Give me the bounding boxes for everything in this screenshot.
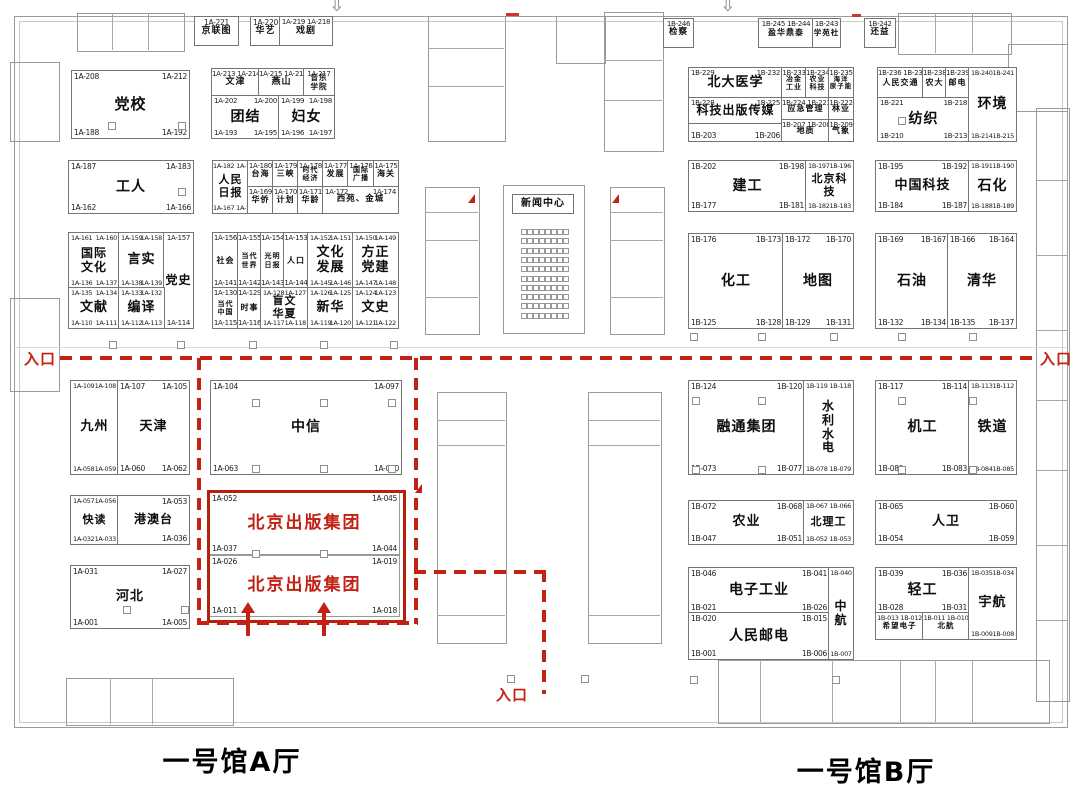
booth-number: 1B-067 bbox=[806, 502, 828, 510]
booth-label: 发展 bbox=[327, 169, 345, 178]
wall-line bbox=[604, 60, 662, 61]
booth-a-fangzhengdangjian: 1A-1501A-1491A-1471A-148方正 党建 bbox=[352, 232, 399, 289]
booth-number: 1A-180 bbox=[248, 162, 273, 170]
booth-label: 当代 世界 bbox=[242, 252, 258, 268]
booth-number: 1A-119 bbox=[310, 319, 331, 327]
booth-number: 1B-125 bbox=[691, 318, 716, 327]
booth-number: 1B-195 bbox=[878, 162, 903, 171]
booth-number: 1A-056 bbox=[95, 497, 116, 505]
booth-number: 1B-233 bbox=[782, 69, 806, 77]
booth-label: 中信 bbox=[291, 419, 321, 435]
booth-number: 1B-046 bbox=[691, 569, 716, 578]
route-dashed-line bbox=[542, 570, 546, 694]
booth-number: 1B-225 bbox=[757, 99, 780, 107]
booth-b-haiyang: 1B-235海洋 原子能 bbox=[828, 67, 854, 99]
wall-line bbox=[900, 660, 901, 722]
pillar bbox=[969, 333, 977, 341]
pillar bbox=[898, 333, 906, 341]
booth-label: 盲文 华夏 bbox=[273, 295, 297, 320]
booth-number: 1B-001 bbox=[691, 649, 716, 658]
booth-b-245-244: 1B-245 1B-244盈华鼎泰 bbox=[758, 18, 814, 48]
booth-a-220: 1A-220华艺 bbox=[250, 16, 281, 46]
booth-a-guojiguangbo: 1A-176国际 广播 bbox=[347, 160, 375, 188]
booth-number: 1A-122 bbox=[375, 319, 396, 327]
booth-label: 党史 bbox=[165, 274, 191, 288]
booth-number: 1B-128 bbox=[756, 318, 781, 327]
booth-label: 人口 bbox=[287, 256, 305, 265]
booth-number: 1A-148 bbox=[375, 279, 396, 287]
booth-number: 1A-057 bbox=[73, 497, 94, 505]
booth-number: 1B-215 bbox=[992, 132, 1014, 140]
pillar bbox=[758, 397, 766, 405]
entrance-label: 入口 bbox=[496, 684, 528, 705]
booth-label: 港澳台 bbox=[134, 513, 173, 527]
news-center-seat bbox=[563, 257, 569, 263]
booth-label: 农业 bbox=[732, 515, 760, 530]
booth-number: 1B-236 1B-237 bbox=[878, 69, 923, 77]
booth-b-kejichubanchuanmei: 1B-2281B-225科技出版传媒 bbox=[688, 97, 783, 125]
booth-a-huaqiao: 1A-169华侨 bbox=[247, 186, 274, 214]
news-center-seat bbox=[563, 229, 569, 235]
pillar bbox=[109, 341, 117, 349]
booth-number: 1B-079 bbox=[829, 465, 851, 473]
booth-number: 1B-184 bbox=[878, 201, 903, 210]
booth-label: 人民 日报 bbox=[219, 174, 243, 199]
booth-a-dangdaishijie: 1A-1551A-142当代 世界 bbox=[237, 232, 262, 289]
booth-a-taihai: 1A-180台海 bbox=[247, 160, 274, 188]
booth-number: 1B-164 bbox=[989, 235, 1014, 244]
booth-number: 1A-112 bbox=[121, 319, 142, 327]
booth-number: 1A-124 bbox=[355, 289, 376, 297]
wall bbox=[1036, 108, 1070, 702]
booth-number: 1A-114 bbox=[164, 319, 193, 327]
booth-number: 1A-109 bbox=[73, 382, 94, 390]
booth-number: 1B-134 bbox=[921, 318, 946, 327]
booth-label: 希望电子 bbox=[883, 622, 917, 631]
booth-number: 1A-105 bbox=[162, 382, 187, 391]
news-center-seat bbox=[563, 294, 569, 300]
wall-line bbox=[588, 445, 660, 446]
booth-b-beijingkeji: 1B-1971B-1961B-1821B-183北京科技 bbox=[805, 160, 854, 212]
booth-number: 1A-198 bbox=[309, 97, 332, 105]
wall-line bbox=[112, 13, 113, 50]
news-center-seat bbox=[563, 276, 569, 282]
booth-number: 1B-214 bbox=[971, 132, 993, 140]
booth-number: 1B-182 bbox=[808, 202, 830, 210]
booth-number: 1B-007 bbox=[829, 650, 853, 658]
booth-number: 1B-232 bbox=[757, 69, 780, 77]
booth-number: 1B-229 bbox=[691, 69, 714, 77]
wall-line bbox=[110, 678, 111, 724]
booth-number: 1B-207 1B-208 bbox=[782, 121, 829, 129]
gate-arrow-icon: ⇩ bbox=[329, 0, 345, 16]
wall-line bbox=[588, 420, 660, 421]
booth-label: 中国科技 bbox=[894, 179, 950, 194]
booth-number: 1A-060 bbox=[120, 464, 145, 473]
booth-number: 1A-123 bbox=[375, 289, 396, 297]
booth-number: 1A-150 bbox=[355, 234, 376, 242]
entrance-label: 入口 bbox=[1040, 348, 1072, 369]
pillar bbox=[178, 122, 186, 130]
booth-number: 1B-008 bbox=[992, 630, 1014, 638]
route-arrow-icon bbox=[246, 612, 250, 636]
booth-a-221: 1A-221京联图 bbox=[194, 16, 239, 46]
wall-line bbox=[588, 615, 660, 616]
booth-number: 1B-028 bbox=[878, 603, 903, 612]
booth-number: 1B-066 bbox=[829, 502, 851, 510]
booth-number: 1B-167 bbox=[921, 235, 946, 244]
booth-number: 1A-121 bbox=[355, 319, 376, 327]
booth-number: 1A-128 bbox=[263, 289, 284, 297]
booth-label: 快读 bbox=[83, 514, 107, 527]
booth-number: 1B-065 bbox=[878, 502, 903, 511]
booth-number: 1A-151 bbox=[330, 234, 351, 242]
booth-number: 1A-174 bbox=[373, 188, 396, 196]
booth-number: 1A-117 bbox=[263, 319, 284, 327]
pillar bbox=[320, 341, 328, 349]
wall bbox=[10, 62, 60, 142]
booth-label: 时事 bbox=[241, 303, 259, 312]
booth-number: 1B-118 bbox=[829, 382, 851, 390]
booth-number: 1A-217 bbox=[304, 70, 334, 78]
booth-b-nongyekeji: 1B-234农业 科技 bbox=[805, 67, 830, 99]
booth-a-yinyue: 1A-217音乐 学院 bbox=[303, 68, 335, 97]
booth-b-qinggong: 1B-0391B-0361B-0281B-031轻工 bbox=[875, 567, 970, 614]
booth-number: 1A-137 bbox=[96, 279, 117, 287]
booth-number: 1B-243 bbox=[813, 20, 840, 28]
booth-label: 戏剧 bbox=[296, 26, 316, 36]
pillar bbox=[692, 466, 700, 474]
booth-number: 1A-161 bbox=[71, 234, 92, 242]
booth-number: 1A-147 bbox=[355, 279, 376, 287]
booth-label: 机工 bbox=[908, 419, 938, 435]
booth-number: 1B-124 bbox=[691, 382, 716, 391]
booth-number: 1A-220 bbox=[251, 18, 280, 27]
booth-number: 1B-053 bbox=[829, 535, 851, 543]
pillar bbox=[507, 675, 515, 683]
booth-a-wenshi: 1A-1241A-1231A-1211A-122文史 bbox=[352, 287, 399, 329]
booth-a-yanshi: 1A-1591A-1581A-1381A-139言实 bbox=[118, 232, 165, 289]
booth-number: 1A-132 bbox=[141, 289, 162, 297]
booth-label: 融通集团 bbox=[717, 419, 777, 435]
booth-number: 1A-197 bbox=[309, 129, 332, 137]
booth-number: 1B-117 bbox=[878, 382, 903, 391]
booth-label: 当代 中国 bbox=[218, 300, 234, 316]
wall-line bbox=[1036, 470, 1068, 471]
booth-a-wenjin: 1A-213 1A-214文津 bbox=[211, 68, 260, 97]
wall bbox=[588, 392, 662, 644]
booth-number: 1B-218 bbox=[944, 99, 967, 107]
wall-line bbox=[610, 240, 663, 241]
booth-b-renminyoudian: 1B-0201B-0151B-0011B-006人民邮电 bbox=[688, 612, 830, 660]
booth-number: 1A-143 bbox=[261, 279, 284, 287]
booth-number: 1B-176 bbox=[691, 235, 716, 244]
booth-number: 1B-113 bbox=[971, 382, 993, 390]
booth-number: 1B-240 bbox=[971, 69, 993, 77]
booth-number: 1A-171 bbox=[298, 188, 323, 196]
booth-number: 1A-058 bbox=[73, 465, 94, 473]
booth-b-nongda: 1B-238农大 bbox=[922, 67, 947, 99]
booth-number: 1A-175 bbox=[374, 162, 398, 170]
booth-number: 1B-242 bbox=[865, 20, 895, 28]
booth-number: 1B-245 1B-244 bbox=[759, 20, 813, 28]
booth-b-qixiang: 1B-209气象 bbox=[828, 119, 854, 142]
booth-a-wenxian: 1A-1351A-1341A-1101A-111文献 bbox=[68, 287, 120, 329]
news-center-seat bbox=[563, 248, 569, 254]
wall bbox=[10, 298, 60, 392]
booth-a-gongren: 1A-1871A-1831A-1621A-166工人 bbox=[68, 160, 194, 214]
booth-a-hualing: 1A-171华龄 bbox=[297, 186, 324, 214]
booth-number: 1B-035 bbox=[971, 569, 993, 577]
booth-label: 河北 bbox=[116, 590, 144, 605]
booth-number: 1A-107 bbox=[120, 382, 145, 391]
booth-number: 1A-149 bbox=[375, 234, 396, 242]
news-center-seat bbox=[563, 266, 569, 272]
booth-label: 华龄 bbox=[302, 195, 320, 204]
booth-number: 1A-188 bbox=[74, 128, 99, 137]
booth-a-dangshi: 1A-1571A-114党史 bbox=[163, 232, 194, 329]
booth-label: 石油 bbox=[897, 273, 927, 289]
wall-line bbox=[1036, 255, 1068, 256]
booth-number: 1A-120 bbox=[330, 319, 351, 327]
booth-label: 妇女 bbox=[292, 109, 322, 125]
booth-number: 1B-241 bbox=[992, 69, 1014, 77]
wall-line bbox=[610, 212, 663, 213]
red-tick bbox=[506, 13, 519, 16]
pillar bbox=[969, 466, 977, 474]
booth-number: 1A-141 bbox=[213, 279, 238, 287]
booth-label: 电子工业 bbox=[729, 582, 789, 598]
booth-label: 国际 文化 bbox=[81, 247, 107, 275]
booth-number: 1B-172 bbox=[785, 235, 810, 244]
pillar bbox=[692, 397, 700, 405]
booth-number: 1B-177 bbox=[691, 201, 716, 210]
booth-number: 1A-158 bbox=[141, 234, 162, 242]
booth-b-shiyou: 1B-1691B-1671B-1321B-134石油 bbox=[875, 233, 949, 329]
booth-number: 1A-176 bbox=[348, 162, 374, 170]
booth-number: 1A-155 bbox=[238, 234, 261, 242]
booth-number: 1B-077 bbox=[777, 464, 802, 473]
booth-label: 党校 bbox=[114, 96, 146, 113]
booth-b-fangzhi: 1B-2211B-2181B-2101B-213纺织 bbox=[877, 97, 970, 142]
booth-label: 农大 bbox=[926, 78, 944, 87]
booth-number: 1B-054 bbox=[878, 534, 903, 543]
booth-number: 1B-137 bbox=[989, 318, 1014, 327]
wall-line bbox=[1036, 330, 1068, 331]
booth-number: 1B-131 bbox=[826, 318, 851, 327]
booth-label: 海关 bbox=[377, 169, 395, 178]
booth-number: 1B-170 bbox=[826, 235, 851, 244]
booth-number: 1A-053 bbox=[162, 497, 187, 506]
booth-number: 1A-097 bbox=[374, 382, 399, 391]
booth-number: 1A-154 bbox=[261, 234, 284, 242]
wall bbox=[718, 660, 1050, 724]
booth-number: 1B-209 bbox=[829, 121, 853, 129]
booth-label: 北京科技 bbox=[806, 173, 853, 198]
booth-a-renminribao: 1A-182 1A-1811A-167 1A-168人民 日报 bbox=[212, 160, 249, 214]
booth-a-hebei: 1A-0311A-0271A-0011A-005河北 bbox=[70, 565, 190, 629]
booth-number: 1A-111 bbox=[96, 319, 117, 327]
booth-a-shidaijingji: 1A-178时代 经济 bbox=[297, 160, 324, 188]
booth-a-renkou: 1A-1531A-144人口 bbox=[283, 232, 309, 289]
booth-number: 1B-041 bbox=[802, 569, 827, 578]
booth-number: 1B-238 bbox=[923, 69, 946, 77]
gate-arrow-icon: ⇩ bbox=[720, 0, 736, 16]
pillar bbox=[252, 399, 260, 407]
booth-label: 环境 bbox=[978, 96, 1008, 112]
wall-line bbox=[1036, 620, 1068, 621]
wall bbox=[610, 187, 665, 335]
booth-number: 1A-126 bbox=[310, 289, 331, 297]
booth-number: 1A-183 bbox=[166, 162, 191, 171]
booth-b-renwei: 1B-0651B-0601B-0541B-059人卫 bbox=[875, 500, 1017, 545]
booth-number: 1A-036 bbox=[162, 534, 187, 543]
booth-b-yuhang: 1B-0351B-0341B-0091B-008宇航 bbox=[968, 567, 1017, 640]
booth-number: 1A-182 1A-181 bbox=[213, 162, 248, 170]
booth-number: 1B-009 bbox=[971, 630, 993, 638]
booth-number: 1B-221 bbox=[880, 99, 903, 107]
booth-a-jihua: 1A-170计划 bbox=[272, 186, 299, 214]
booth-number: 1A-221 bbox=[195, 18, 238, 27]
booth-number: 1B-060 bbox=[989, 502, 1014, 511]
booth-number: 1B-191 bbox=[971, 162, 993, 170]
booth-number: 1A-138 bbox=[121, 279, 142, 287]
booth-number: 1A-005 bbox=[162, 618, 187, 627]
booth-number: 1B-187 bbox=[942, 201, 967, 210]
wall-line bbox=[760, 660, 761, 722]
booth-a-jiuzhou: 1A-1091A-1081A-0581A-059九州 bbox=[70, 380, 119, 475]
wall-line bbox=[425, 212, 478, 213]
booth-number: 1B-183 bbox=[829, 202, 851, 210]
booth-number: 1B-021 bbox=[691, 603, 716, 612]
booth-label: 文化 发展 bbox=[316, 246, 344, 276]
booth-a-funv: 1A-1991A-1981A-1961A-197妇女 bbox=[278, 95, 335, 139]
booth-number: 1B-213 bbox=[944, 132, 967, 140]
booth-number: 1A-153 bbox=[284, 234, 308, 242]
booth-number: 1A-177 bbox=[323, 162, 348, 170]
news-center-seat bbox=[563, 303, 569, 309]
booth-label: 纺织 bbox=[909, 111, 939, 127]
wall bbox=[77, 13, 185, 52]
booth-b-youdian: 1B-239邮电 bbox=[945, 67, 970, 99]
pillar bbox=[758, 466, 766, 474]
booth-number: 1B-052 bbox=[806, 535, 828, 543]
wall bbox=[428, 16, 506, 142]
booth-b-jigong: 1B-1171B-1141B-0801B-083机工 bbox=[875, 380, 970, 475]
booth-number: 1A-160 bbox=[96, 234, 117, 242]
booth-label: 团结 bbox=[231, 109, 261, 125]
booth-label: 文献 bbox=[80, 301, 108, 316]
route-arrow-icon bbox=[322, 612, 326, 636]
booth-number: 1A-215 1A-216 bbox=[259, 70, 304, 78]
booth-label: 文史 bbox=[361, 301, 389, 316]
booth-number: 1A-167 1A-168 bbox=[213, 204, 248, 212]
booth-label: 宇航 bbox=[978, 596, 1006, 611]
booth-number: 1B-196 bbox=[829, 162, 851, 170]
booth-label: 九州 bbox=[80, 420, 108, 435]
booth-label: 新华 bbox=[316, 301, 344, 316]
booth-a-guangmingribao: 1A-1541A-143光明 日报 bbox=[260, 232, 285, 289]
wall bbox=[604, 12, 664, 152]
booth-number: 1B-040 bbox=[829, 569, 853, 577]
booth-number: 1A-213 1A-214 bbox=[212, 70, 259, 78]
booth-number: 1A-162 bbox=[71, 203, 96, 212]
pillar bbox=[898, 117, 906, 125]
booth-number: 1A-062 bbox=[162, 464, 187, 473]
pillar bbox=[758, 333, 766, 341]
booth-label: 编译 bbox=[127, 301, 155, 316]
booth-number: 1B-026 bbox=[802, 603, 827, 612]
booth-a-kuaidu: 1A-0571A-0561A-0321A-033快读 bbox=[70, 495, 119, 545]
booth-label: 言实 bbox=[127, 253, 155, 268]
booth-number: 1B-132 bbox=[878, 318, 903, 327]
booth-label: 盈华鼎泰 bbox=[768, 28, 804, 37]
booth-b-shihua: 1B-1911B-1901B-1881B-189石化 bbox=[968, 160, 1017, 212]
booth-number: 1A-118 bbox=[285, 319, 306, 327]
booth-b-beihang: 1B-011 1B-010北航 bbox=[922, 612, 970, 640]
booth-number: 1B-011 1B-010 bbox=[923, 614, 969, 622]
booth-label: 人民邮电 bbox=[729, 628, 789, 644]
booth-number: 1A-127 bbox=[285, 289, 306, 297]
booth-number: 1A-199 bbox=[281, 97, 304, 105]
news-center-seat bbox=[563, 313, 569, 319]
pillar bbox=[320, 465, 328, 473]
wall-line bbox=[14, 347, 1066, 348]
booth-a-shishi: 1A-1291A-116时事 bbox=[237, 287, 262, 329]
booth-b-huagong: 1B-1761B-1731B-1251B-128化工 bbox=[688, 233, 784, 329]
booth-label: 天津 bbox=[139, 420, 167, 435]
hall-b-caption: 一号馆B厅 bbox=[797, 750, 936, 786]
wall-line bbox=[428, 48, 504, 49]
pillar bbox=[898, 466, 906, 474]
booth-a-tuanjie: 1A-2021A-2001A-1931A-195团结 bbox=[211, 95, 280, 139]
booth-label: 社会 bbox=[217, 256, 235, 265]
wall bbox=[1008, 44, 1068, 112]
booth-number: 1B-222 bbox=[829, 99, 853, 107]
booth-number: 1A-156 bbox=[213, 234, 238, 242]
booth-a-shehui: 1A-1561A-141社会 bbox=[212, 232, 239, 289]
news-center-seat bbox=[563, 285, 569, 291]
route-dashed-line bbox=[197, 621, 418, 625]
booth-a-gangaotai: 1A-0531A-036港澳台 bbox=[117, 495, 190, 545]
pillar bbox=[690, 333, 698, 341]
booth-label: 邮电 bbox=[949, 78, 967, 87]
booth-label: 海洋 原子能 bbox=[830, 76, 853, 91]
booth-b-strip-203: 1B-2031B-206 bbox=[688, 123, 783, 142]
route-dashed-line bbox=[414, 358, 418, 624]
booth-b-tiedao: 1B-1131B-1121B-0841B-085铁道 bbox=[968, 380, 1017, 475]
booth-number: 1B-072 bbox=[691, 502, 716, 511]
booth-label: 人卫 bbox=[932, 515, 960, 530]
booth-b-yingjiguanli: 1B-224 1B-223应急管理 bbox=[781, 97, 830, 121]
booth-label: 石化 bbox=[978, 178, 1008, 194]
booth-label: 北航 bbox=[938, 622, 955, 631]
wall-line bbox=[1036, 180, 1068, 181]
booth-number: 1B-235 bbox=[829, 69, 853, 77]
booth-number: 1A-125 bbox=[330, 289, 351, 297]
red-tick bbox=[852, 14, 861, 17]
booth-number: 1A-142 bbox=[238, 279, 261, 287]
pillar bbox=[690, 676, 698, 684]
booth-label: 检察 bbox=[669, 28, 688, 38]
booth-number: 1A-104 bbox=[213, 382, 238, 391]
route-dashed-line bbox=[60, 356, 1036, 360]
booth-number: 1A-139 bbox=[141, 279, 162, 287]
booth-number: 1A-170 bbox=[273, 188, 298, 196]
booth-number: 1A-208 bbox=[74, 72, 99, 81]
pillar bbox=[581, 675, 589, 683]
pillar bbox=[832, 676, 840, 684]
